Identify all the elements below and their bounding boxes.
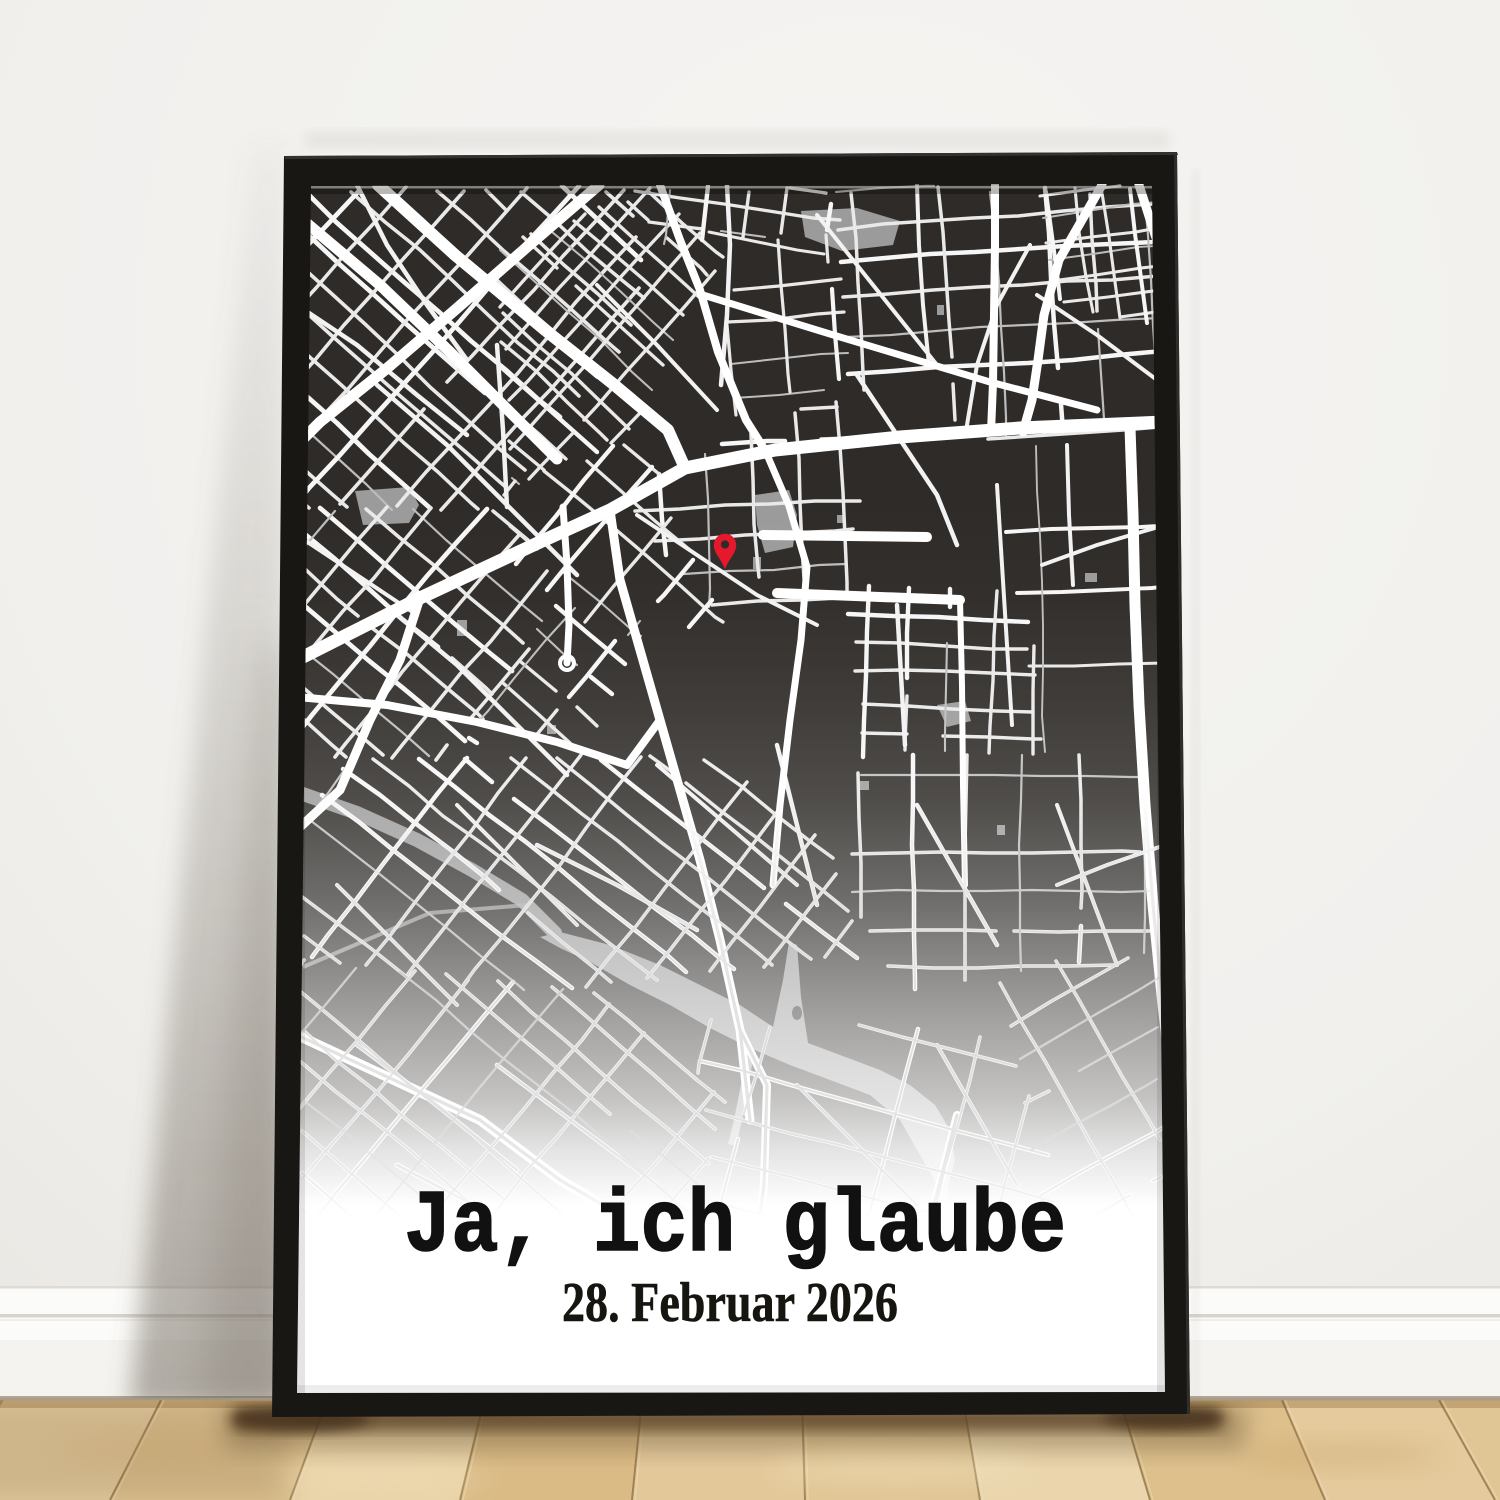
- svg-text:Ja, ich glaube: Ja, ich glaube: [404, 1178, 1066, 1277]
- svg-text:28. Februar 2026: 28. Februar 2026: [562, 1272, 898, 1334]
